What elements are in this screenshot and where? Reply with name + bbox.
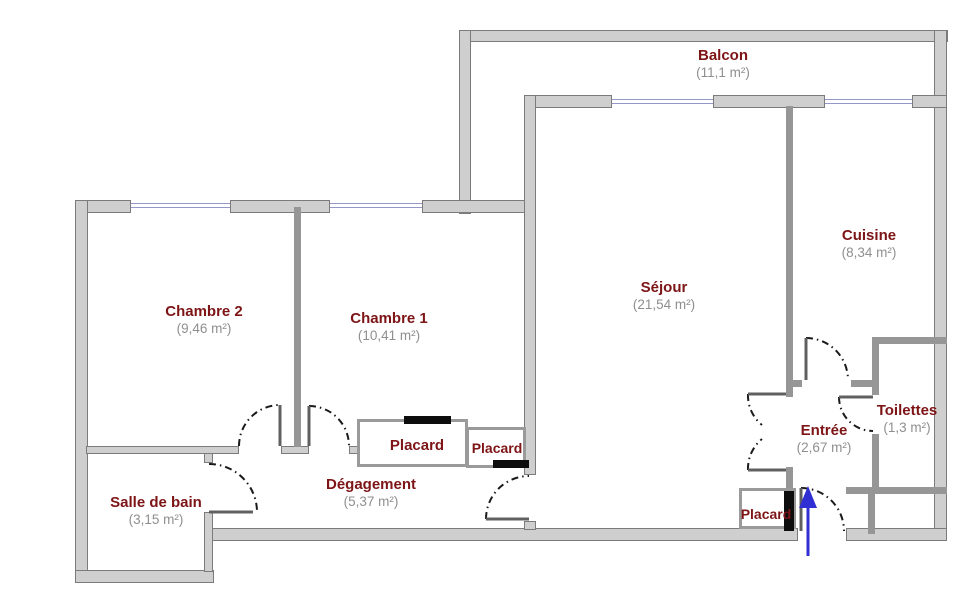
room-label-entree: Entrée (2,67 m²): [797, 422, 852, 457]
wall-sejour-left: [524, 95, 536, 475]
wall-top-sejour-b: [713, 95, 825, 108]
room-name: Dégagement: [326, 476, 416, 494]
wall-balcony-left: [459, 30, 471, 214]
door-arc-entrance: [801, 488, 844, 531]
room-label-salle-de-bain: Salle de bain (3,15 m²): [110, 494, 202, 529]
wall-bottom-b: [846, 528, 947, 541]
room-label-degagement: Dégagement (5,37 m²): [326, 476, 416, 511]
door-arc-sejour: [486, 476, 529, 519]
room-name: Placard: [741, 506, 792, 523]
wall-chambre-partition: [294, 207, 301, 447]
room-name: Placard: [472, 440, 523, 457]
room-name: Séjour: [633, 279, 695, 297]
wall-bottom-a: [204, 528, 798, 541]
room-label-chambre1: Chambre 1 (10,41 m²): [350, 310, 428, 345]
room-name: Cuisine: [842, 227, 897, 245]
wall-cuisine-bottom-a: [786, 380, 802, 387]
wall-top-chambre1: [422, 200, 531, 213]
room-area: (11,1 m²): [696, 65, 750, 81]
room-area: (1,3 m²): [877, 420, 938, 436]
wall-balcony-top: [459, 30, 948, 42]
window-chambre2: [131, 203, 230, 208]
wall-entree-niche-stub: [868, 487, 875, 534]
room-name: Placard: [390, 437, 444, 455]
wall-toilettes-left-lower: [872, 434, 879, 490]
window-cuisine: [825, 99, 912, 104]
room-label-placard-entree: Placard: [741, 506, 792, 523]
room-name: Entrée: [797, 422, 852, 440]
wall-toilettes-left-upper: [872, 337, 879, 395]
door-arc-chambre1: [309, 406, 349, 446]
room-name: Chambre 1: [350, 310, 428, 328]
door-arc-salle-de-bain: [209, 464, 257, 512]
room-name: Chambre 2: [165, 303, 243, 321]
door-arc-double-bottom: [748, 439, 762, 470]
room-name: Toilettes: [877, 402, 938, 420]
wall-left: [75, 200, 88, 583]
entrance-arrow-icon: [799, 486, 817, 556]
room-area: (5,37 m²): [326, 494, 416, 510]
door-arc-double-top: [748, 394, 762, 425]
window-sejour: [612, 99, 713, 104]
room-label-chambre2: Chambre 2 (9,46 m²): [165, 303, 243, 338]
wall-sejour-left-stub: [524, 521, 536, 530]
room-area: (2,67 m²): [797, 440, 852, 456]
room-area: (3,15 m²): [110, 512, 202, 528]
closet-couloir-2-sliding-door: [493, 460, 529, 468]
room-label-toilettes: Toilettes (1,3 m²): [877, 402, 938, 437]
room-name: Balcon: [696, 47, 750, 65]
door-arc-chambre2: [239, 405, 280, 446]
room-area: (10,41 m²): [350, 328, 428, 344]
room-label-placard-couloir-2: Placard: [472, 440, 523, 457]
room-label-cuisine: Cuisine (8,34 m²): [842, 227, 897, 262]
room-name: Salle de bain: [110, 494, 202, 512]
wall-bathroom-bottom: [75, 570, 214, 583]
wall-chambres-bottom-b: [281, 446, 309, 454]
room-label-placard-couloir: Placard: [390, 437, 444, 455]
wall-toilettes-top: [872, 337, 947, 344]
wall-top-sejour-a: [524, 95, 612, 108]
room-area: (9,46 m²): [165, 321, 243, 337]
room-label-sejour: Séjour (21,54 m²): [633, 279, 695, 314]
wall-sejour-cuisine-partition: [786, 106, 793, 397]
room-area: (8,34 m²): [842, 245, 897, 261]
window-chambre1: [330, 203, 422, 208]
closet-couloir-sliding-door: [404, 416, 451, 424]
floor-plan: Balcon (11,1 m²) Cuisine (8,34 m²) Séjou…: [0, 0, 972, 612]
wall-top-chambre2-b: [230, 200, 330, 213]
door-arc-cuisine: [806, 338, 848, 380]
wall-top-cuisine: [912, 95, 947, 108]
wall-bathroom-right-lower: [204, 512, 213, 572]
wall-chambres-bottom-a: [86, 446, 239, 454]
room-area: (21,54 m²): [633, 297, 695, 313]
wall-toilettes-bottom: [846, 487, 947, 494]
room-label-balcon: Balcon (11,1 m²): [696, 47, 750, 82]
